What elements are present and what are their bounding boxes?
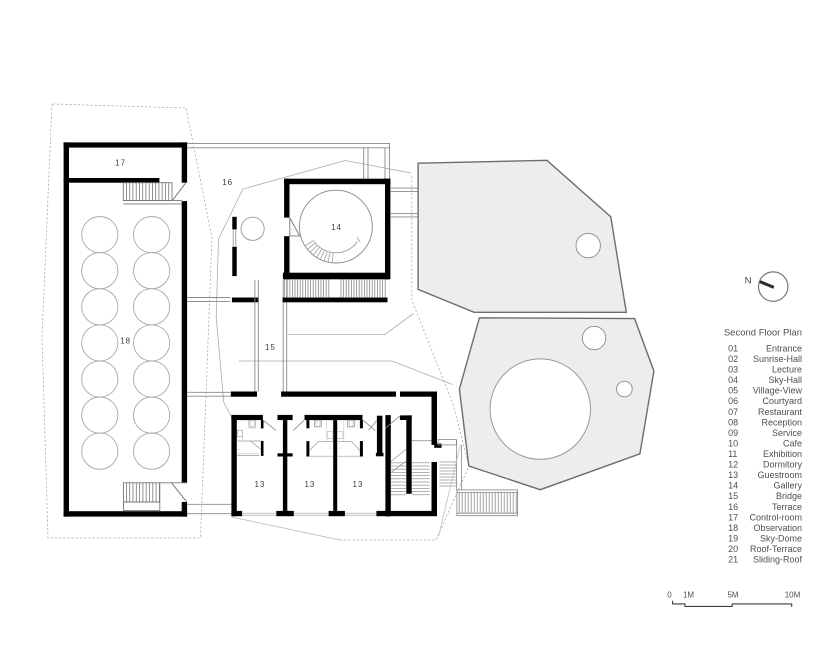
- svg-text:Lecture: Lecture: [772, 365, 802, 375]
- svg-text:Roof-Terrace: Roof-Terrace: [750, 544, 802, 554]
- svg-text:15: 15: [728, 491, 738, 501]
- svg-text:N: N: [745, 276, 752, 287]
- svg-text:Courtyard: Courtyard: [762, 396, 802, 406]
- svg-text:18: 18: [728, 523, 738, 533]
- svg-text:09: 09: [728, 428, 738, 438]
- svg-text:Sunrise-Hall: Sunrise-Hall: [753, 354, 802, 364]
- svg-text:17: 17: [115, 159, 126, 168]
- svg-text:02: 02: [728, 354, 738, 364]
- svg-text:Guestroom: Guestroom: [757, 470, 802, 480]
- svg-text:13: 13: [254, 480, 265, 489]
- svg-text:1M: 1M: [683, 591, 694, 600]
- svg-text:10: 10: [728, 438, 738, 448]
- svg-text:Bridge: Bridge: [776, 491, 802, 501]
- svg-text:Cafe: Cafe: [783, 438, 802, 448]
- svg-text:08: 08: [728, 417, 738, 427]
- svg-text:Exhibition: Exhibition: [763, 449, 802, 459]
- svg-text:21: 21: [728, 555, 738, 565]
- svg-text:Second Floor Plan: Second Floor Plan: [724, 327, 802, 338]
- svg-text:05: 05: [728, 386, 738, 396]
- svg-text:Village-View: Village-View: [753, 386, 803, 396]
- svg-text:16: 16: [222, 178, 233, 187]
- svg-text:16: 16: [728, 502, 738, 512]
- svg-text:10M: 10M: [785, 591, 801, 600]
- svg-text:5M: 5M: [727, 591, 738, 600]
- svg-text:Terrace: Terrace: [772, 502, 802, 512]
- svg-text:01: 01: [728, 343, 738, 353]
- svg-text:20: 20: [728, 544, 738, 554]
- svg-text:Restaurant: Restaurant: [758, 407, 803, 417]
- svg-text:06: 06: [728, 396, 738, 406]
- svg-text:07: 07: [728, 407, 738, 417]
- svg-text:Gallery: Gallery: [773, 481, 802, 491]
- svg-text:Sky-Dome: Sky-Dome: [760, 534, 802, 544]
- svg-text:03: 03: [728, 365, 738, 375]
- svg-text:13: 13: [304, 480, 315, 489]
- svg-text:13: 13: [353, 480, 364, 489]
- svg-text:0: 0: [667, 591, 672, 600]
- svg-text:14: 14: [331, 223, 342, 232]
- svg-text:17: 17: [728, 512, 738, 522]
- svg-text:12: 12: [728, 460, 738, 470]
- svg-text:Control-room: Control-room: [749, 512, 802, 522]
- svg-text:Sky-Hall: Sky-Hall: [768, 375, 802, 385]
- svg-text:15: 15: [265, 343, 276, 352]
- svg-text:Service: Service: [772, 428, 802, 438]
- svg-text:Reception: Reception: [761, 417, 802, 427]
- svg-text:Sliding-Roof: Sliding-Roof: [753, 555, 803, 565]
- svg-text:13: 13: [728, 470, 738, 480]
- svg-text:04: 04: [728, 375, 738, 385]
- svg-text:11: 11: [728, 449, 737, 459]
- svg-text:Dormitory: Dormitory: [763, 460, 803, 470]
- svg-text:14: 14: [728, 481, 738, 491]
- svg-text:18: 18: [120, 336, 131, 345]
- svg-text:Observation: Observation: [753, 523, 802, 533]
- svg-text:19: 19: [728, 534, 738, 544]
- svg-text:Entrance: Entrance: [766, 343, 802, 353]
